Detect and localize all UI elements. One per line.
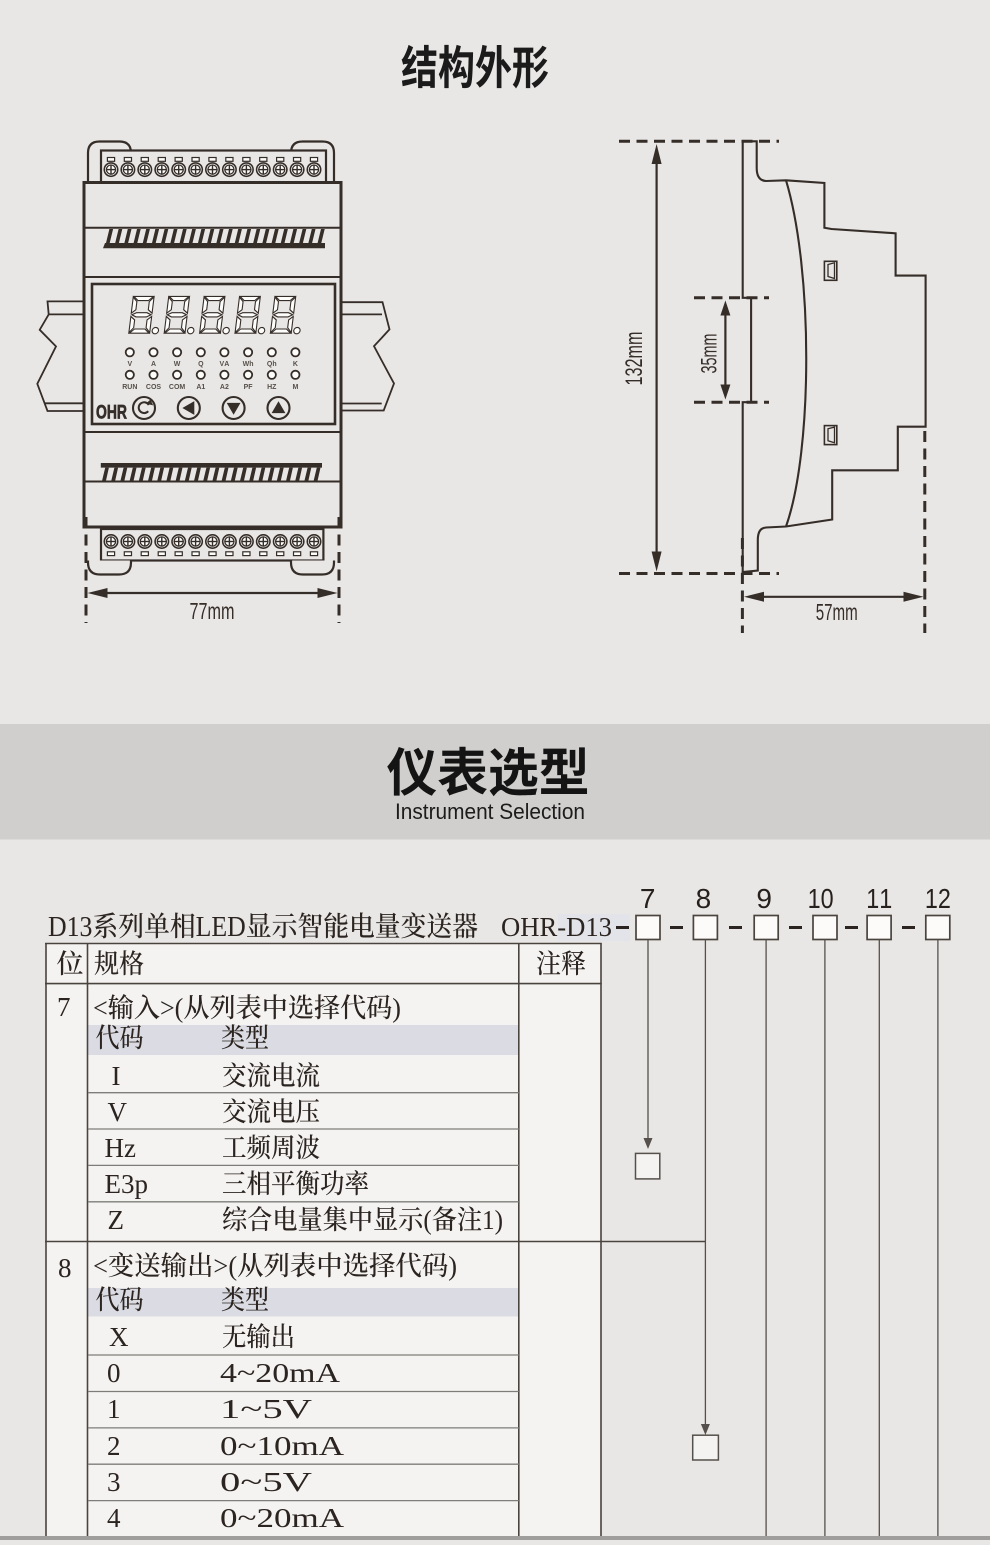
- svg-text:Hz: Hz: [105, 1133, 136, 1163]
- svg-text:<变送输出>(从列表中选择代码): <变送输出>(从列表中选择代码): [93, 1244, 457, 1283]
- svg-text:综合电量集中显示(备注1): 综合电量集中显示(备注1): [222, 1198, 503, 1237]
- svg-text:交流电压: 交流电压: [222, 1090, 320, 1129]
- svg-text:规格: 规格: [94, 942, 144, 981]
- svg-text:交流电流: 交流电流: [222, 1054, 320, 1093]
- svg-text:57mm: 57mm: [816, 599, 858, 625]
- svg-text:无输出: 无输出: [222, 1315, 295, 1354]
- svg-text:COS: COS: [146, 384, 162, 391]
- svg-text:7: 7: [640, 883, 656, 914]
- svg-text:35mm: 35mm: [697, 334, 722, 374]
- svg-text:仪表选型: 仪表选型: [387, 731, 590, 806]
- svg-text:Qh: Qh: [267, 361, 277, 368]
- svg-text:RUN: RUN: [122, 384, 137, 391]
- svg-text:7: 7: [57, 992, 71, 1022]
- svg-text:代码: 代码: [96, 1278, 144, 1317]
- svg-text:K: K: [293, 361, 298, 368]
- svg-text:代码: 代码: [96, 1016, 144, 1055]
- svg-text:结构外形: 结构外形: [401, 32, 549, 98]
- svg-text:8: 8: [696, 883, 712, 914]
- svg-text:2: 2: [107, 1431, 121, 1461]
- svg-text:A: A: [151, 361, 156, 368]
- svg-text:W: W: [174, 361, 181, 368]
- svg-text:Instrument Selection: Instrument Selection: [395, 799, 585, 824]
- svg-text:4: 4: [107, 1503, 121, 1533]
- svg-text:D13系列单相LED显示智能电量变送器: D13系列单相LED显示智能电量变送器: [48, 905, 478, 945]
- svg-text:8: 8: [58, 1253, 72, 1283]
- svg-text:0~5V: 0~5V: [220, 1467, 313, 1497]
- svg-text:E3p: E3p: [105, 1169, 149, 1199]
- svg-text:4~20mA: 4~20mA: [220, 1358, 341, 1388]
- svg-text:9: 9: [756, 883, 772, 914]
- svg-text:V: V: [127, 361, 132, 368]
- svg-text:工频周波: 工频周波: [222, 1126, 320, 1165]
- svg-text:类型: 类型: [221, 1016, 269, 1055]
- svg-text:OHR-D13: OHR-D13: [501, 911, 612, 942]
- svg-text:10: 10: [808, 883, 834, 914]
- svg-text:M: M: [292, 384, 298, 391]
- svg-text:1: 1: [107, 1394, 121, 1424]
- svg-text:I: I: [112, 1061, 121, 1091]
- svg-text:Q: Q: [198, 361, 204, 368]
- svg-text:1~5V: 1~5V: [220, 1394, 313, 1424]
- svg-text:0~20mA: 0~20mA: [220, 1503, 345, 1533]
- svg-text:A1: A1: [196, 384, 205, 391]
- svg-text:HZ: HZ: [267, 384, 277, 391]
- svg-text:VA: VA: [220, 361, 230, 368]
- svg-text:位: 位: [57, 942, 84, 981]
- svg-text:Wh: Wh: [243, 361, 254, 368]
- svg-text:OHR: OHR: [96, 403, 127, 424]
- svg-text:PF: PF: [244, 384, 254, 391]
- svg-text:11: 11: [866, 883, 892, 914]
- svg-text:12: 12: [925, 883, 951, 914]
- svg-text:0: 0: [107, 1358, 121, 1388]
- svg-text:注释: 注释: [536, 942, 586, 981]
- svg-text:类型: 类型: [221, 1278, 269, 1317]
- svg-text:V: V: [108, 1097, 128, 1127]
- svg-text:A2: A2: [220, 384, 229, 391]
- svg-text:COM: COM: [169, 384, 186, 391]
- svg-text:77mm: 77mm: [190, 598, 235, 624]
- svg-text:0~10mA: 0~10mA: [220, 1431, 345, 1461]
- svg-text:三相平衡功率: 三相平衡功率: [222, 1162, 369, 1201]
- svg-text:Z: Z: [108, 1205, 125, 1235]
- svg-text:X: X: [109, 1322, 129, 1352]
- svg-text:3: 3: [107, 1467, 121, 1497]
- svg-text:132mm: 132mm: [621, 332, 648, 386]
